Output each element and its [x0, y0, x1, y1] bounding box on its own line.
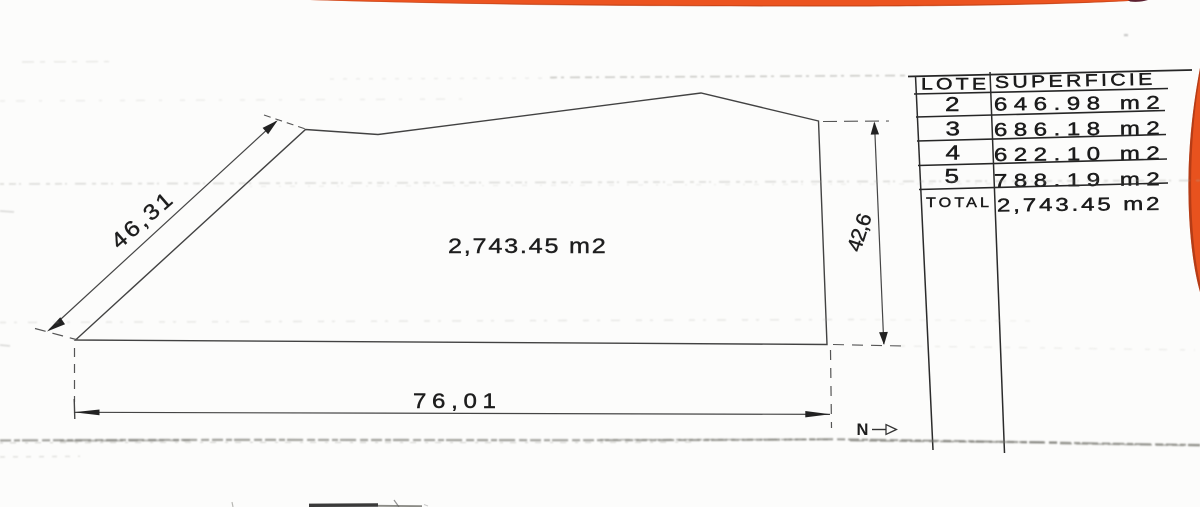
- svg-text:3: 3: [946, 118, 961, 141]
- svg-text:2,743.45 m2: 2,743.45 m2: [448, 234, 606, 258]
- svg-text:N: N: [857, 421, 869, 439]
- svg-text:5: 5: [945, 165, 960, 188]
- svg-text:76,01: 76,01: [413, 388, 496, 412]
- svg-text:TOTAL: TOTAL: [926, 196, 989, 210]
- svg-text:2: 2: [945, 93, 960, 116]
- svg-text:4: 4: [946, 142, 961, 165]
